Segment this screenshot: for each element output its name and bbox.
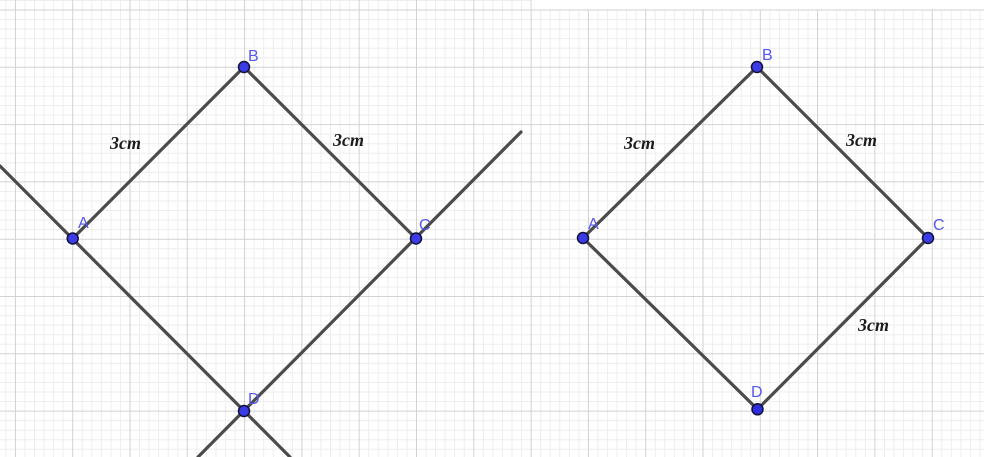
point-A[interactable] [67,233,78,244]
point-label-C: C [419,217,431,234]
point-C[interactable] [411,233,422,244]
side-length-label: 3cm [857,315,889,335]
point-label-A: A [78,215,89,232]
point-C[interactable] [923,233,934,244]
point-D[interactable] [752,404,763,415]
point-label-D: D [248,391,260,408]
side-length-label: 3cm [332,130,364,150]
geometry-worksheet-canvas: 3cm3cmABCD3cm3cm3cmABCD [0,0,984,457]
geometry-scene: 3cm3cmABCD3cm3cm3cmABCD [0,0,984,457]
point-label-B: B [762,47,773,64]
side-length-label: 3cm [845,130,877,150]
side-length-label: 3cm [109,133,141,153]
point-label-B: B [248,48,259,65]
side-length-label: 3cm [623,133,655,153]
point-label-C: C [933,217,945,234]
point-A[interactable] [578,233,589,244]
point-label-D: D [751,384,763,401]
paste-margin-strip [532,0,984,10]
point-label-A: A [588,216,599,233]
point-B[interactable] [752,62,763,73]
